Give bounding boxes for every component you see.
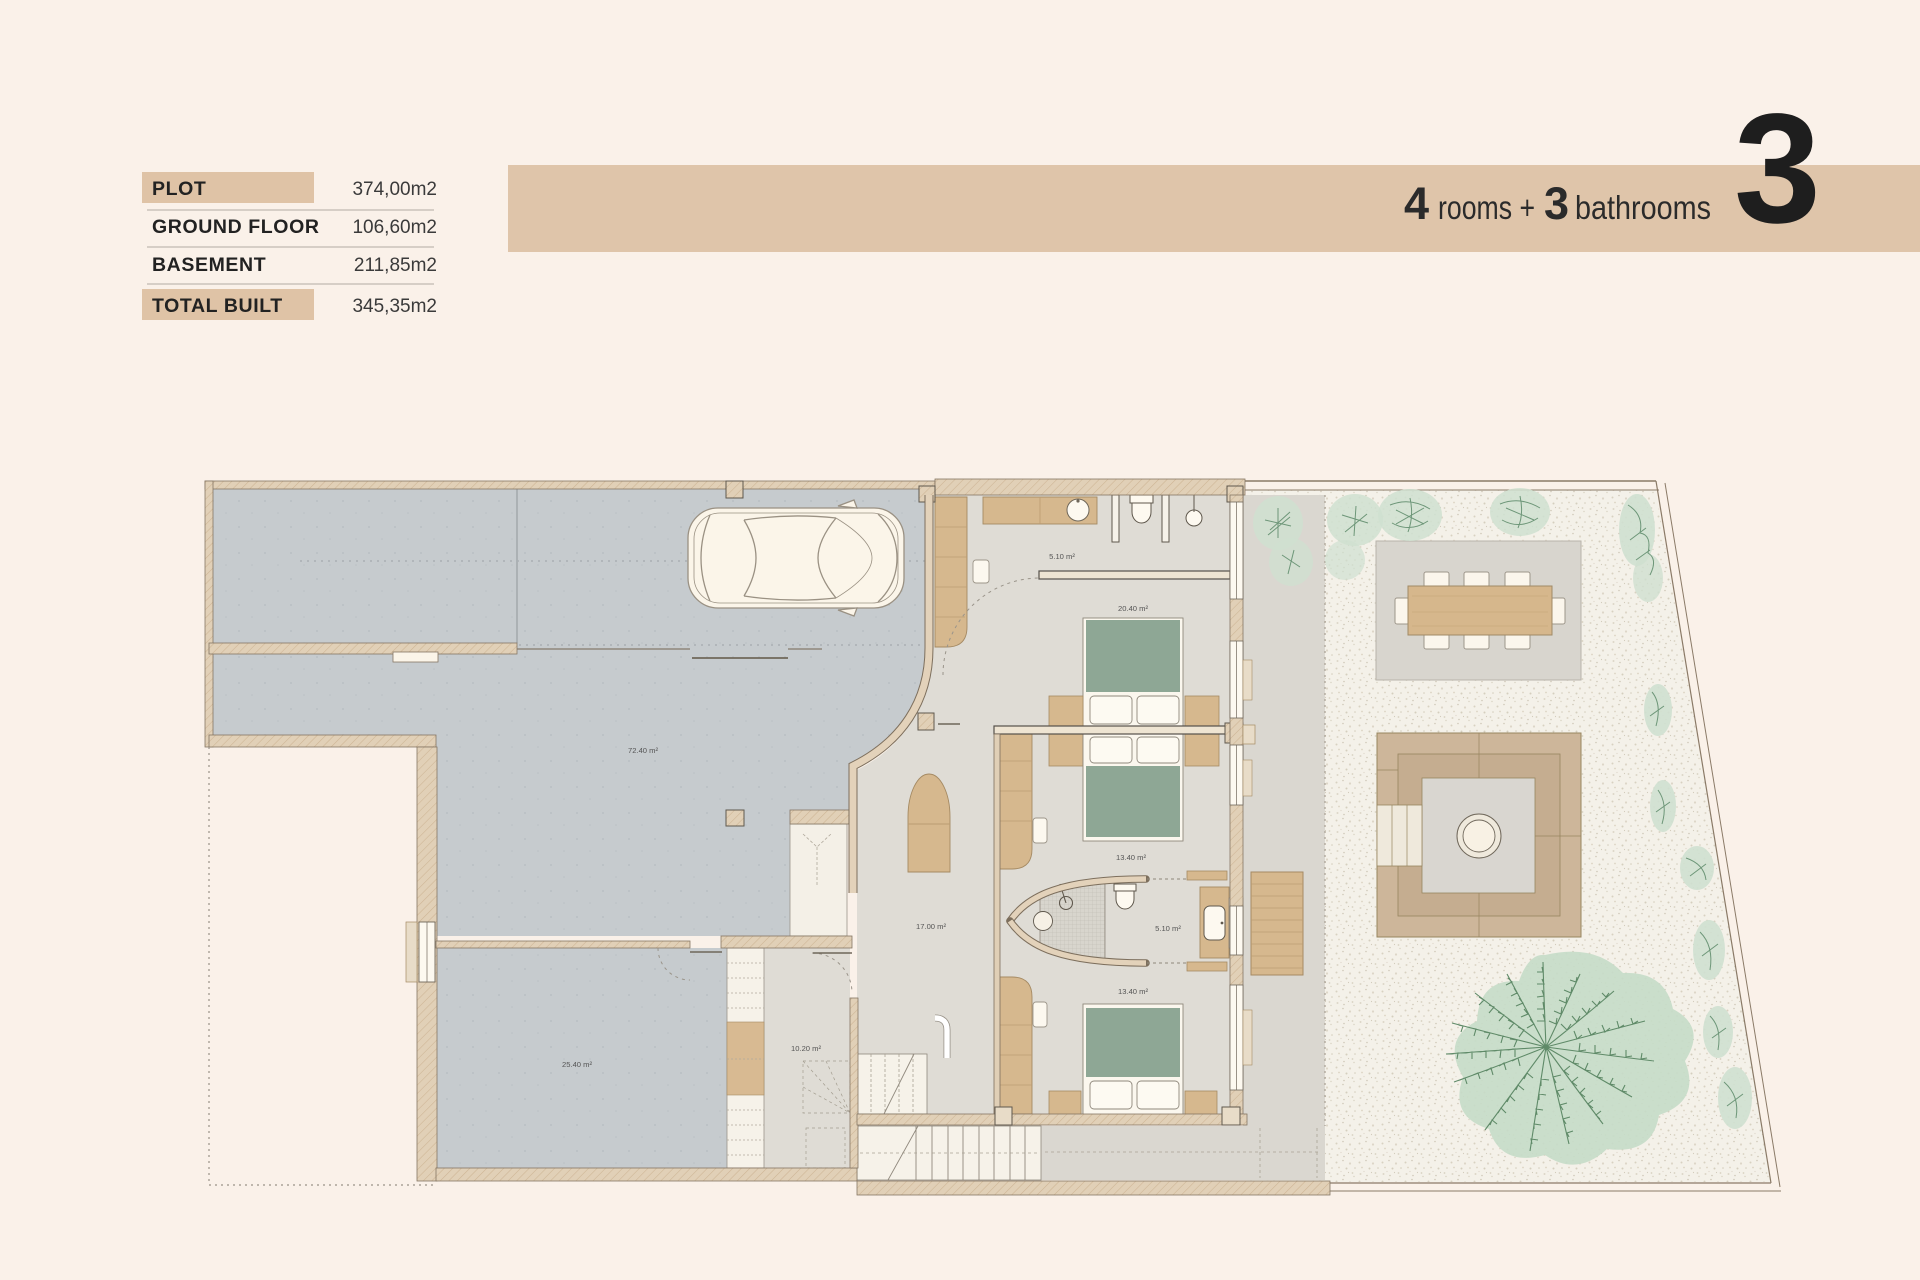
svg-text:72.40 m²: 72.40 m² bbox=[628, 746, 658, 755]
svg-text:374,00m2: 374,00m2 bbox=[352, 179, 437, 200]
svg-text:345,35m2: 345,35m2 bbox=[352, 296, 437, 317]
svg-text:bathrooms: bathrooms bbox=[1575, 189, 1711, 226]
svg-text:3: 3 bbox=[1544, 178, 1569, 229]
svg-text:13.40 m²: 13.40 m² bbox=[1118, 987, 1148, 996]
svg-text:4: 4 bbox=[1404, 178, 1429, 229]
svg-text:GROUND FLOOR: GROUND FLOOR bbox=[152, 216, 320, 238]
svg-text:5.10 m²: 5.10 m² bbox=[1155, 924, 1181, 933]
svg-text:rooms +: rooms + bbox=[1438, 189, 1535, 226]
svg-text:106,60m2: 106,60m2 bbox=[352, 217, 437, 238]
svg-text:17.00 m²: 17.00 m² bbox=[916, 922, 946, 931]
svg-text:211,85m2: 211,85m2 bbox=[354, 255, 437, 276]
svg-text:5.10 m²: 5.10 m² bbox=[1049, 552, 1075, 561]
svg-text:3: 3 bbox=[1734, 82, 1821, 256]
svg-text:13.40 m²: 13.40 m² bbox=[1116, 853, 1146, 862]
svg-text:20.40 m²: 20.40 m² bbox=[1118, 604, 1148, 613]
svg-text:BASEMENT: BASEMENT bbox=[152, 254, 266, 276]
svg-text:25.40 m²: 25.40 m² bbox=[562, 1060, 592, 1069]
svg-text:10.20 m²: 10.20 m² bbox=[791, 1044, 821, 1053]
svg-text:PLOT: PLOT bbox=[152, 178, 206, 200]
svg-text:TOTAL BUILT: TOTAL BUILT bbox=[152, 295, 283, 317]
